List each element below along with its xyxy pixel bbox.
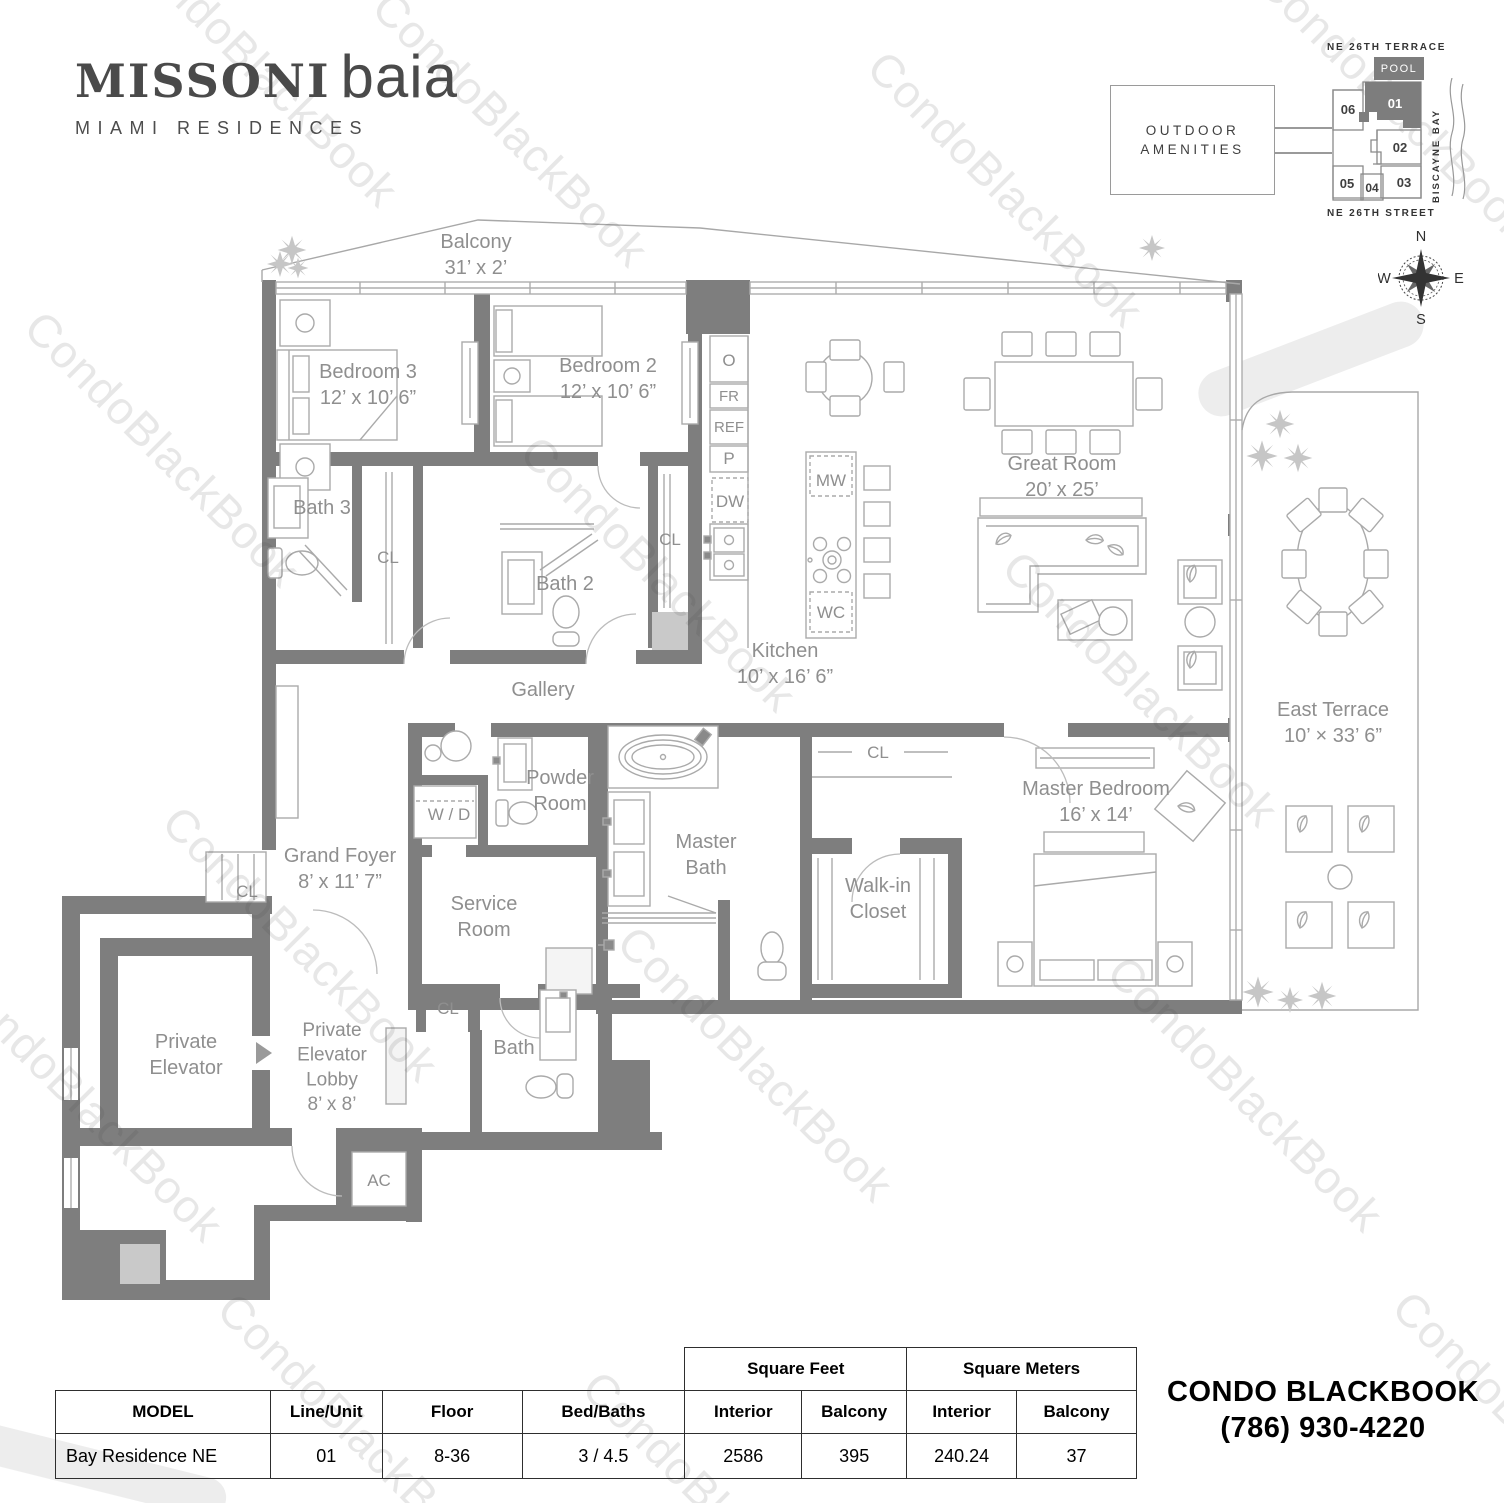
room-label-master-bath: MasterBath [675, 831, 736, 879]
cell-line-unit: 01 [270, 1434, 382, 1479]
room-label-service-room: ServiceRoom [451, 893, 518, 941]
amenities-label-line2: AMENITIES [1140, 142, 1244, 157]
cell-sf-interior: 2586 [685, 1434, 802, 1479]
column-header-sf-interior: Interior [685, 1391, 802, 1434]
microwave-label: MW [816, 471, 846, 490]
table-row: Bay Residence NE 01 8-36 3 / 4.5 2586 39… [56, 1434, 1137, 1479]
room-label-bath: Bath [493, 1037, 534, 1059]
fridge-label: FR [719, 388, 739, 405]
column-header-sf-balcony: Balcony [802, 1391, 907, 1434]
room-label-bath3: Bath 3 [293, 497, 351, 519]
room-label-kitchen: Kitchen10’ x 16’ 6” [737, 640, 833, 688]
room-label-great-room: Great Room20’ x 25’ [1008, 453, 1117, 501]
cell-sm-balcony: 37 [1017, 1434, 1137, 1479]
oven-label: O [722, 351, 735, 370]
closet-label: CL [377, 548, 399, 567]
column-header-sm-balcony: Balcony [1017, 1391, 1137, 1434]
closet-label: CL [659, 530, 681, 549]
brand-name-secondary: baia [341, 50, 458, 104]
unit-label-04: 04 [1365, 181, 1379, 195]
pantry-label: P [723, 449, 734, 468]
footer-contact: CONDO BLACKBOOK (786) 930-4220 [1142, 1374, 1504, 1447]
unit-label-01: 01 [1388, 96, 1402, 111]
compass-west-label: W [1378, 271, 1391, 287]
bay-waves [1444, 78, 1472, 204]
floor-plan: Balcony31’ x 2’ Bedroom 312’ x 10’ 6” Be… [0, 0, 1504, 1503]
group-header-square-feet: Square Feet [685, 1348, 907, 1391]
closet-label: CL [437, 999, 459, 1018]
pool-badge: POOL [1374, 57, 1424, 80]
compass-rose: N E S W [1378, 225, 1466, 325]
washer-dryer-label: W / D [428, 805, 471, 824]
group-header-square-meters: Square Meters [907, 1348, 1137, 1391]
street-label-top: NE 26TH TERRACE [1327, 42, 1446, 53]
room-label-master-bedroom: Master Bedroom16’ x 14’ [1022, 778, 1170, 826]
keyplan-connector [1274, 127, 1332, 129]
footer-brand: CONDO BLACKBOOK [1142, 1374, 1504, 1410]
unit-label-03: 03 [1397, 175, 1411, 190]
room-label-powder-room: PowderRoom [526, 767, 594, 815]
compass-south-label: S [1416, 312, 1426, 325]
table-group-header-row: Square Feet Square Meters [56, 1348, 1137, 1391]
cell-bed-baths: 3 / 4.5 [522, 1434, 685, 1479]
cell-sf-balcony: 395 [802, 1434, 907, 1479]
footer-phone: (786) 930-4220 [1142, 1410, 1504, 1446]
compass-north-label: N [1416, 229, 1426, 245]
keyplan-building: 06 01 02 03 04 05 [1325, 80, 1445, 208]
column-header-bed-baths: Bed/Baths [522, 1391, 685, 1434]
room-label-bedroom2: Bedroom 212’ x 10’ 6” [559, 355, 657, 403]
summary-table: Square Feet Square Meters MODEL Line/Uni… [55, 1347, 1137, 1479]
unit-label-05: 05 [1340, 176, 1354, 191]
wine-cooler-label: WC [817, 603, 845, 622]
room-label-bath2: Bath 2 [536, 573, 594, 595]
column-header-sm-interior: Interior [907, 1391, 1017, 1434]
cell-floor: 8-36 [382, 1434, 522, 1479]
cell-model: Bay Residence NE [56, 1434, 271, 1479]
dishwasher-label: DW [716, 492, 744, 511]
table-header-row: MODEL Line/Unit Floor Bed/Baths Interior… [56, 1391, 1137, 1434]
amenities-label-line1: OUTDOOR [1146, 123, 1240, 138]
room-label-balcony: Balcony31’ x 2’ [440, 231, 511, 279]
room-labels: Balcony31’ x 2’ Bedroom 312’ x 10’ 6” Be… [149, 231, 1389, 1190]
brand-tagline: MIAMI RESIDENCES [75, 118, 458, 139]
room-label-gallery: Gallery [511, 679, 574, 701]
room-label-private-elevator-lobby: PrivateElevatorLobby8’ x 8’ [297, 1020, 367, 1115]
room-label-walk-in-closet: Walk-inCloset [845, 875, 911, 923]
column-header-line-unit: Line/Unit [270, 1391, 382, 1434]
closet-label: CL [867, 743, 889, 762]
brand-logo: MISSONI baia MIAMI RESIDENCES [75, 50, 458, 139]
closet-label: CL [236, 882, 258, 901]
room-label-private-elevator: PrivateElevator [149, 1031, 223, 1079]
brand-name-primary: MISSONI [75, 54, 331, 108]
refrigerator-label: REF [714, 419, 744, 436]
column-header-floor: Floor [382, 1391, 522, 1434]
unit-label-06: 06 [1341, 102, 1355, 117]
flyer-page: CondoBlackBook CondoBlackBook CondoBlack… [0, 0, 1504, 1503]
outdoor-amenities-box: OUTDOOR AMENITIES [1110, 85, 1275, 195]
column-header-model: MODEL [56, 1391, 271, 1434]
street-label-bottom: NE 26TH STREET [1327, 208, 1436, 219]
unit-label-02: 02 [1393, 140, 1407, 155]
room-label-east-terrace: East Terrace10’ × 33’ 6” [1277, 699, 1389, 747]
room-label-grand-foyer: Grand Foyer8’ x 11’ 7” [284, 845, 397, 893]
keyplan-connector [1274, 152, 1332, 154]
cell-sm-interior: 240.24 [907, 1434, 1017, 1479]
ac-label: AC [367, 1171, 391, 1190]
compass-east-label: E [1454, 271, 1464, 287]
